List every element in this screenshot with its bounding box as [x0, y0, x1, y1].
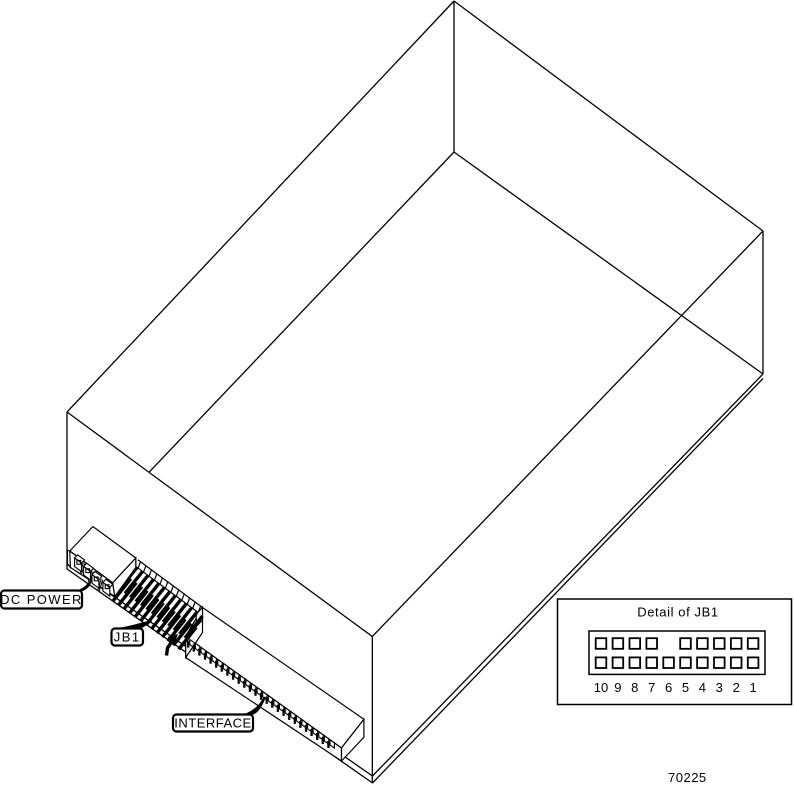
svg-text:70225: 70225: [668, 770, 707, 785]
svg-text:10: 10: [594, 680, 608, 695]
svg-text:5: 5: [682, 680, 689, 695]
svg-text:1: 1: [749, 680, 756, 695]
svg-text:7: 7: [648, 680, 655, 695]
svg-text:INTERFACE: INTERFACE: [174, 716, 251, 731]
svg-text:9: 9: [614, 680, 621, 695]
svg-text:4: 4: [699, 680, 706, 695]
svg-text:2: 2: [733, 680, 740, 695]
svg-text:3: 3: [716, 680, 723, 695]
svg-text:8: 8: [631, 680, 638, 695]
svg-text:JB1: JB1: [114, 630, 141, 645]
svg-text:6: 6: [665, 680, 672, 695]
svg-text:DC POWER: DC POWER: [0, 592, 83, 607]
svg-text:Detail of JB1: Detail of JB1: [637, 605, 719, 620]
